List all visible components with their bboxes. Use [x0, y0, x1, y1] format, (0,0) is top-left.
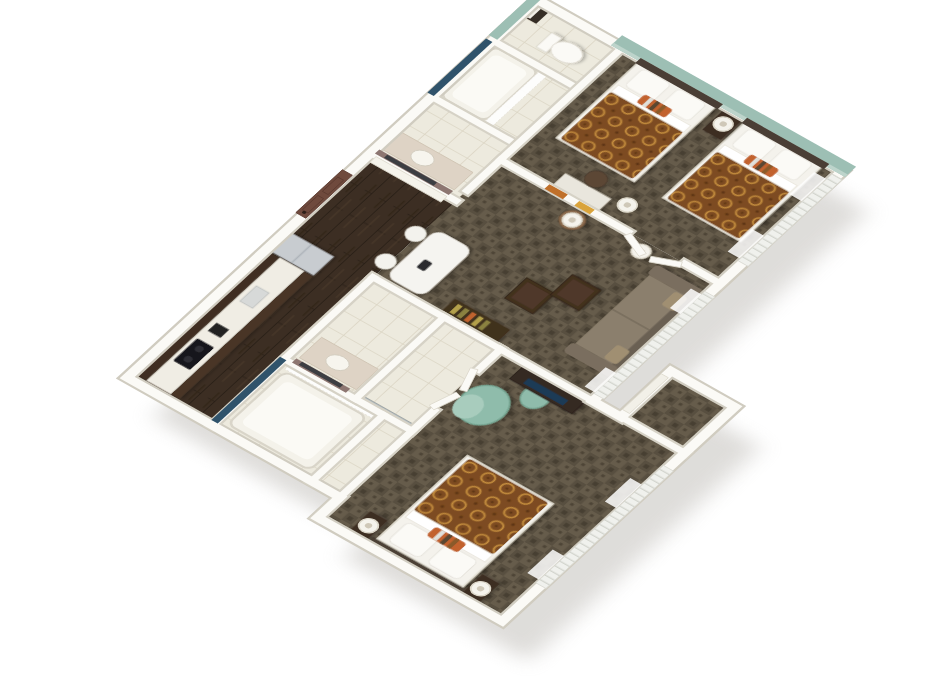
- floorplan-3d-render: [0, 0, 934, 700]
- building: [99, 0, 934, 624]
- floorplan-stage: [0, 0, 934, 700]
